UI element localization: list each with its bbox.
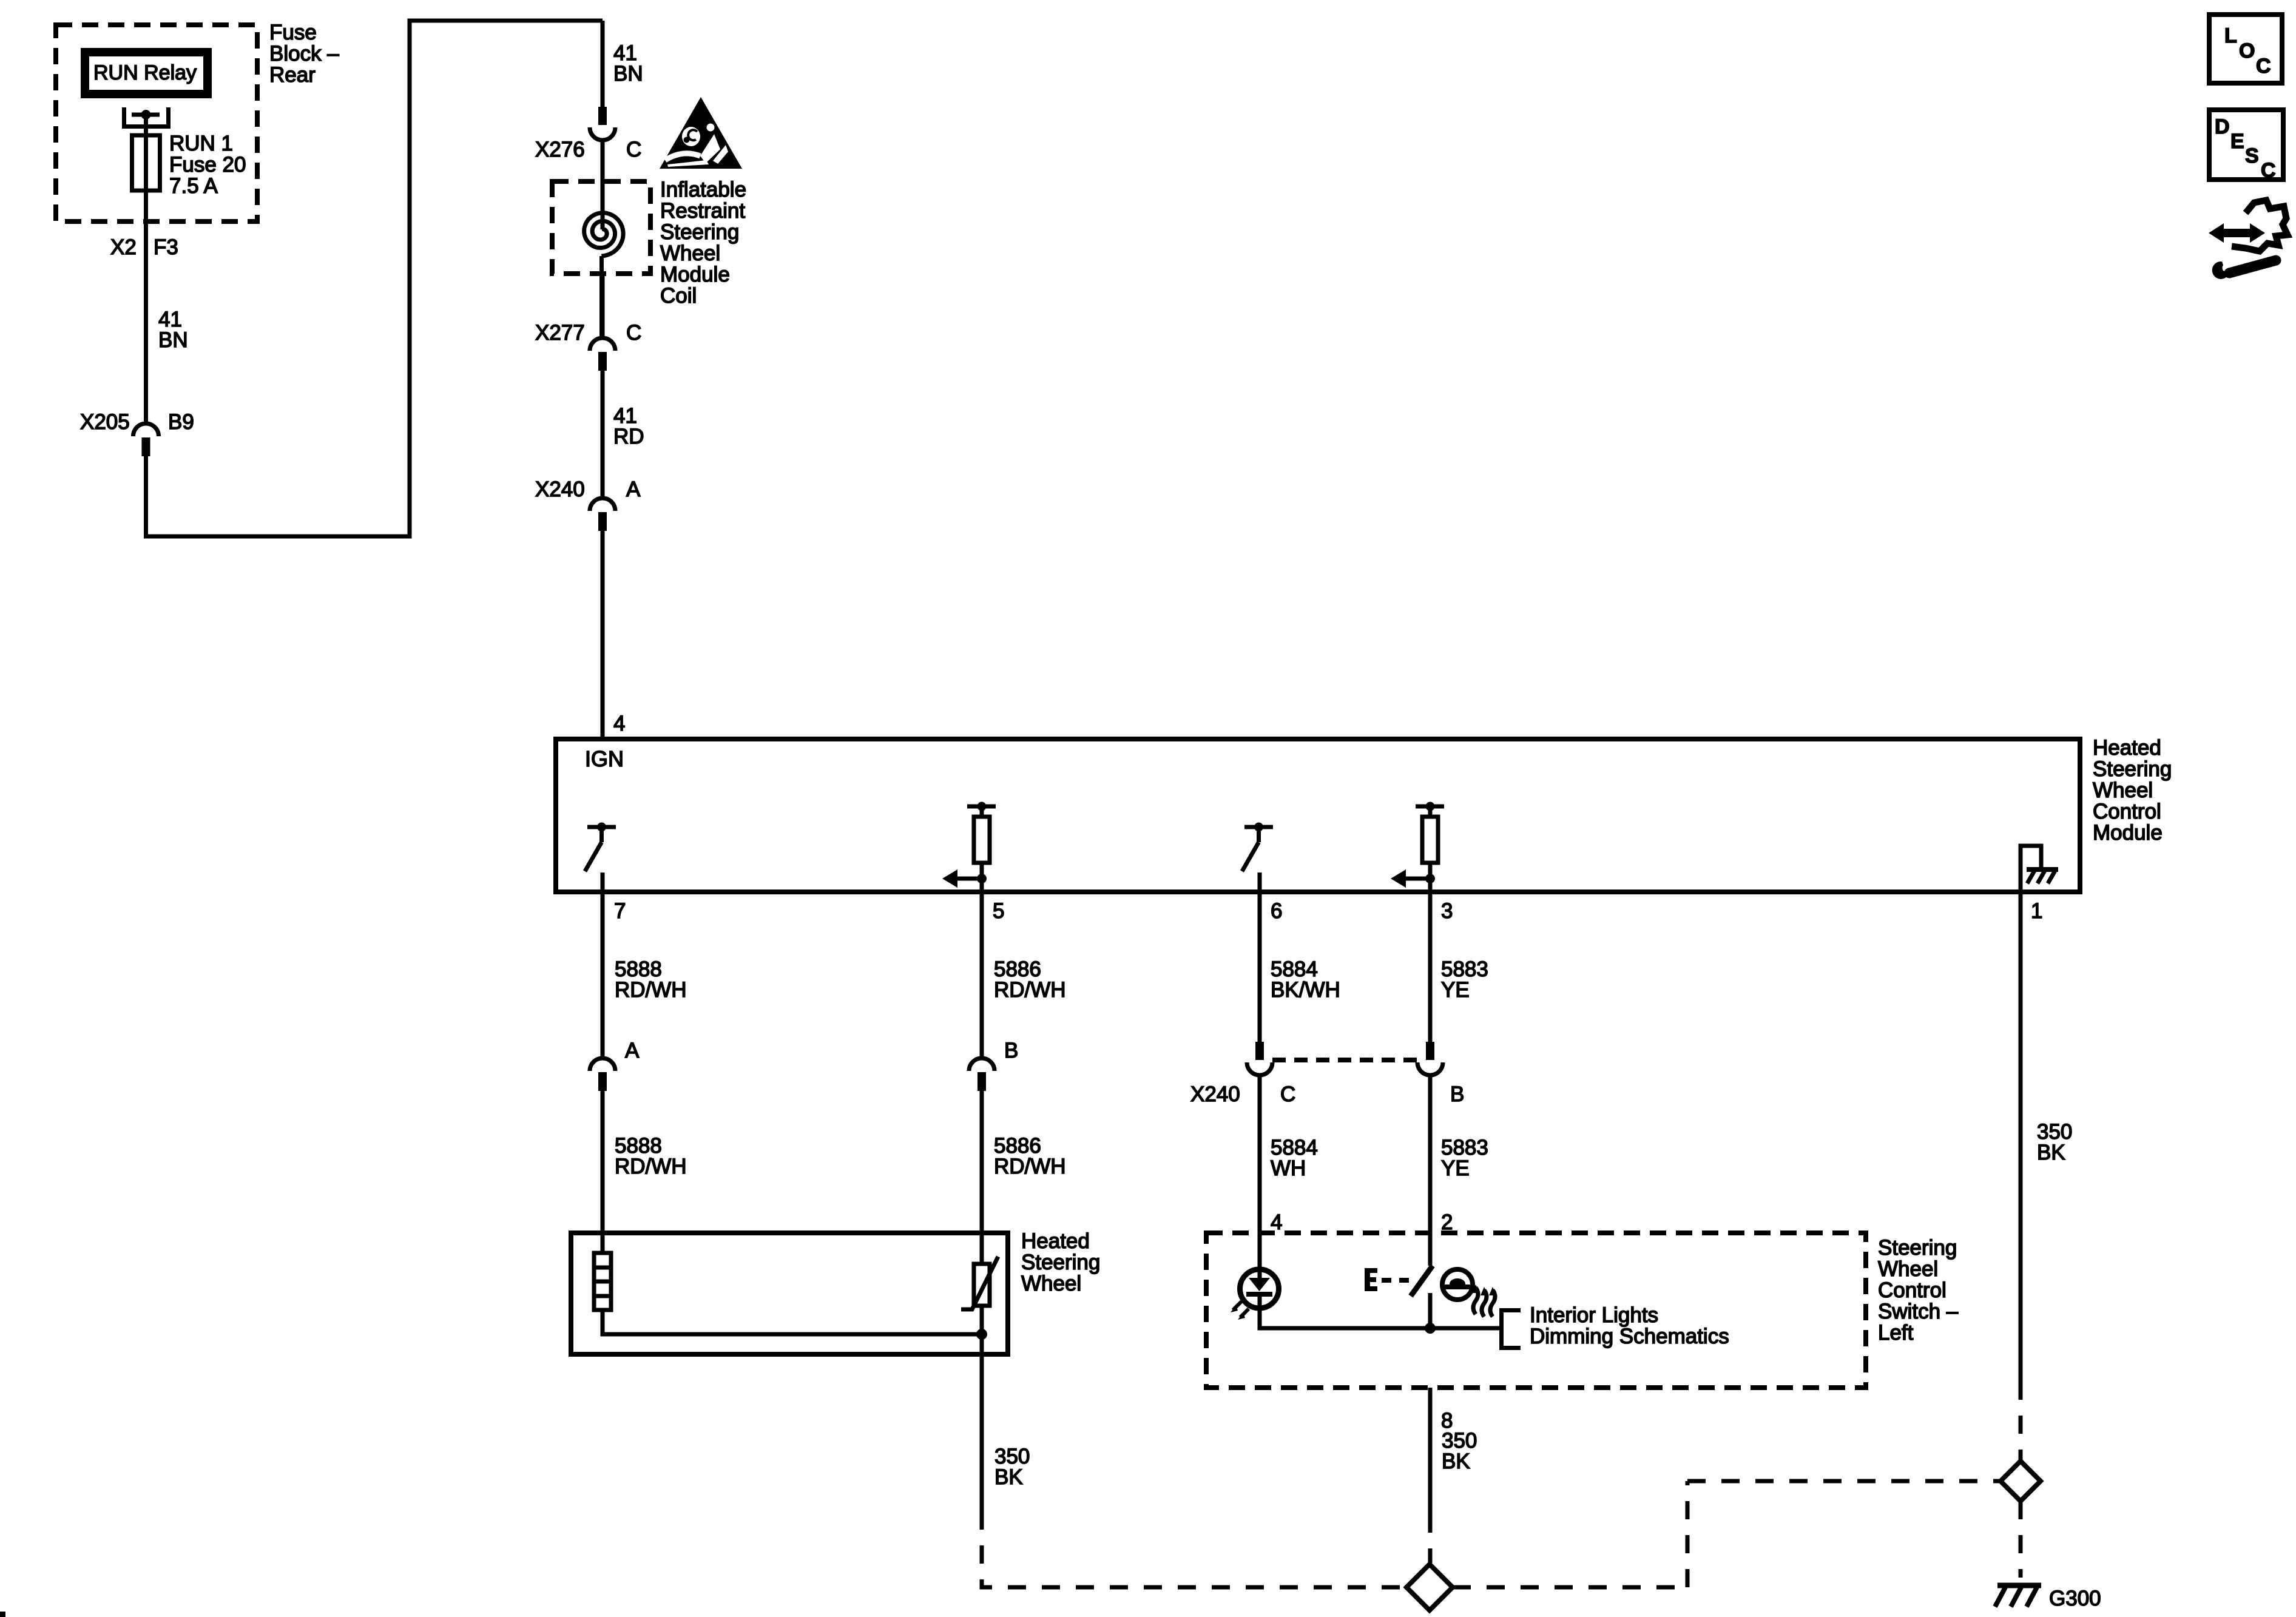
svg-text:BK/WH: BK/WH <box>1271 978 1340 1002</box>
svg-text:BK: BK <box>994 1465 1023 1489</box>
svg-text:RD/WH: RD/WH <box>994 1155 1066 1178</box>
svg-text:RUN 1: RUN 1 <box>169 132 233 155</box>
svg-text:Wheel: Wheel <box>1878 1257 1938 1281</box>
svg-text:Steering: Steering <box>1021 1251 1100 1274</box>
svg-text:RD/WH: RD/WH <box>615 978 687 1002</box>
svg-text:S: S <box>2245 144 2259 167</box>
svg-text:Heated: Heated <box>2093 736 2161 760</box>
svg-text:4: 4 <box>613 712 625 735</box>
svg-text:6: 6 <box>1271 899 1282 923</box>
svg-text:X205: X205 <box>80 410 130 434</box>
svg-text:E: E <box>2230 130 2244 153</box>
svg-text:YE: YE <box>1441 978 1470 1002</box>
svg-text:C: C <box>2261 159 2276 182</box>
svg-text:Coil: Coil <box>660 284 697 308</box>
svg-text:X276: X276 <box>535 138 585 161</box>
svg-text:Heated: Heated <box>1021 1229 1090 1253</box>
svg-text:C: C <box>626 138 641 161</box>
svg-text:Steering: Steering <box>660 220 739 244</box>
svg-text:YE: YE <box>1441 1156 1470 1180</box>
svg-text:C: C <box>2256 55 2271 78</box>
svg-text:3: 3 <box>1441 899 1453 923</box>
svg-text:A: A <box>625 1039 640 1062</box>
svg-text:7.5 A: 7.5 A <box>169 174 218 198</box>
svg-text:Dimming Schematics: Dimming Schematics <box>1530 1325 1729 1348</box>
svg-text:B: B <box>1450 1082 1464 1106</box>
svg-text:RD: RD <box>613 425 644 448</box>
svg-text:Steering: Steering <box>2093 757 2172 781</box>
svg-text:Fuse: Fuse <box>269 21 317 44</box>
svg-text:A: A <box>626 478 641 501</box>
svg-text:Rear: Rear <box>269 63 316 87</box>
svg-text:C: C <box>626 321 641 345</box>
svg-text:1: 1 <box>2031 899 2042 923</box>
svg-text:Control: Control <box>2093 800 2161 823</box>
svg-text:RD/WH: RD/WH <box>615 1155 687 1178</box>
svg-text:B9: B9 <box>168 410 194 434</box>
svg-text:Wheel: Wheel <box>1021 1272 1081 1295</box>
svg-text:Module: Module <box>2093 821 2163 845</box>
svg-text:WH: WH <box>1271 1156 1306 1180</box>
svg-text:Steering: Steering <box>1878 1236 1957 1260</box>
svg-text:L: L <box>2224 24 2237 47</box>
svg-text:BN: BN <box>158 328 188 352</box>
svg-text:X2: X2 <box>110 235 137 259</box>
svg-text:D: D <box>2215 115 2230 138</box>
svg-text:Left: Left <box>1878 1321 1914 1345</box>
svg-text:B: B <box>1004 1039 1018 1062</box>
svg-text:Restraint: Restraint <box>660 199 745 223</box>
svg-text:RUN Relay: RUN Relay <box>93 61 197 84</box>
svg-text:Wheel: Wheel <box>660 241 720 265</box>
svg-text:X240: X240 <box>535 478 585 501</box>
svg-text:X240: X240 <box>1190 1082 1240 1106</box>
svg-text:Inflatable: Inflatable <box>660 178 746 201</box>
svg-text:Block –: Block – <box>269 42 339 66</box>
svg-text:5: 5 <box>993 899 1004 923</box>
svg-text:Interior Lights: Interior Lights <box>1530 1303 1658 1327</box>
svg-text:Fuse 20: Fuse 20 <box>169 153 246 177</box>
svg-text:Wheel: Wheel <box>2093 778 2153 802</box>
svg-text:Switch –: Switch – <box>1878 1300 1959 1323</box>
svg-text:X277: X277 <box>535 321 585 345</box>
svg-text:BK: BK <box>2037 1141 2065 1164</box>
svg-text:RD/WH: RD/WH <box>994 978 1066 1002</box>
svg-text:BK: BK <box>1442 1450 1470 1473</box>
svg-text:G300: G300 <box>2049 1587 2101 1610</box>
svg-text:F3: F3 <box>154 235 178 259</box>
svg-text:IGN: IGN <box>585 746 624 771</box>
svg-text:Control: Control <box>1878 1278 1947 1302</box>
svg-text:BN: BN <box>613 62 643 86</box>
svg-text:C: C <box>1280 1082 1295 1106</box>
svg-text:7: 7 <box>614 899 626 923</box>
svg-text:O: O <box>2239 39 2255 62</box>
svg-text:Module: Module <box>660 263 730 286</box>
